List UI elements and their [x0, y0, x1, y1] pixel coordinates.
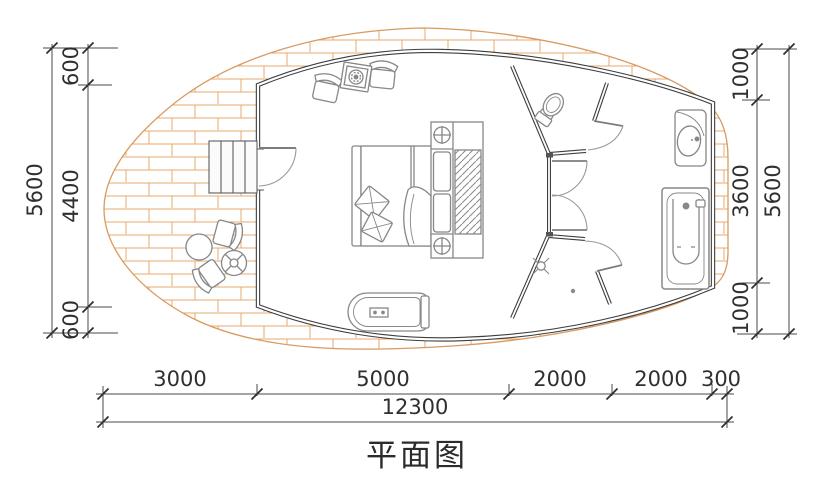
bathtub-icon	[662, 188, 709, 289]
dim-right-3600: 3600	[729, 164, 753, 217]
dim-bottom-300: 300	[701, 367, 741, 391]
duvet-drape	[404, 187, 431, 246]
dim-left-600-top: 600	[59, 46, 83, 86]
dim-bottom-2000b: 2000	[634, 367, 687, 391]
dim-right-1000-top: 1000	[729, 47, 753, 100]
armchair-icon	[368, 60, 399, 90]
vanity-sink-icon	[675, 110, 706, 166]
floor-plan-canvas: 600 4400 600 5600 1000 3600 1000 5600 30…	[0, 0, 837, 496]
outdoor-round-table-icon	[186, 234, 212, 260]
freestanding-tub-icon	[348, 293, 429, 331]
wardrobe-icon	[431, 122, 483, 258]
dim-left-total: 5600	[23, 163, 47, 216]
dim-right-1000-bottom: 1000	[729, 281, 753, 334]
dim-bottom-total: 12300	[382, 395, 449, 419]
dim-bottom-3000: 3000	[153, 367, 206, 391]
drawing-title: 平面图	[366, 438, 468, 474]
dim-left-600-bottom: 600	[59, 300, 83, 340]
dim-left-4400: 4400	[59, 169, 83, 222]
dim-bottom-5000: 5000	[356, 367, 409, 391]
floor-drain-icon	[571, 289, 575, 293]
double-bed-icon	[352, 146, 432, 246]
entry-steps	[209, 141, 257, 193]
dim-right-total: 5600	[761, 164, 785, 217]
dim-bottom-2000a: 2000	[533, 367, 586, 391]
stove-table-icon	[340, 62, 372, 92]
outdoor-parasol-table-icon	[222, 251, 247, 276]
floor-plan-page: 600 4400 600 5600 1000 3600 1000 5600 30…	[0, 0, 837, 496]
